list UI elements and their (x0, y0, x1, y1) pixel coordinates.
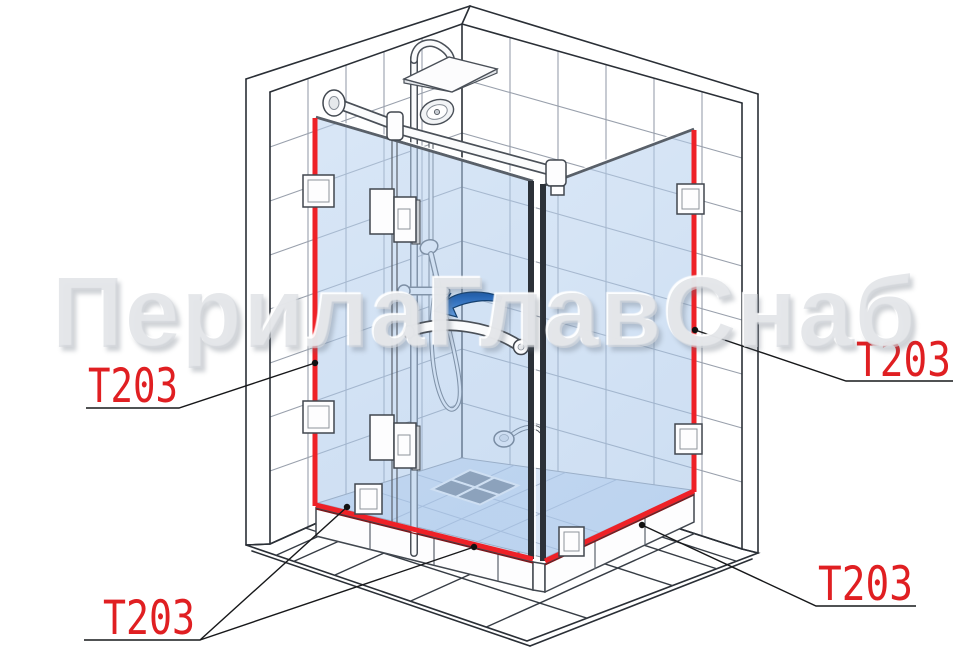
leader-dot (692, 327, 698, 333)
wall-bracket-left-lower (303, 401, 334, 433)
leader-dot (639, 522, 645, 528)
leader-dot (344, 504, 350, 510)
floor-clamp-right (559, 527, 584, 556)
floor-clamp-left (355, 484, 382, 514)
leader-dot (312, 360, 318, 366)
diagram-canvas: T203 T203 T203 T203 (0, 0, 970, 661)
glass-panel-right (545, 130, 694, 560)
label-t203-right: T203 (856, 333, 951, 388)
wall-bracket-right-lower (675, 424, 702, 454)
label-t203-bottom-right: T203 (818, 557, 913, 612)
support-bar-elbow (387, 112, 403, 140)
support-bar-glass-clamp (546, 160, 566, 186)
label-t203-left: T203 (88, 359, 178, 414)
leader-bottom-left-b (200, 547, 474, 640)
shower-enclosure-diagram: T203 T203 T203 T203 ПерилаГлавСнаб (0, 0, 970, 661)
wall-bracket-right-upper (677, 184, 704, 214)
leader-dot (471, 544, 477, 550)
label-t203-bottom-left: T203 (103, 591, 195, 646)
wall-bracket-left-upper (303, 175, 334, 207)
curb-corner-face (533, 562, 545, 592)
